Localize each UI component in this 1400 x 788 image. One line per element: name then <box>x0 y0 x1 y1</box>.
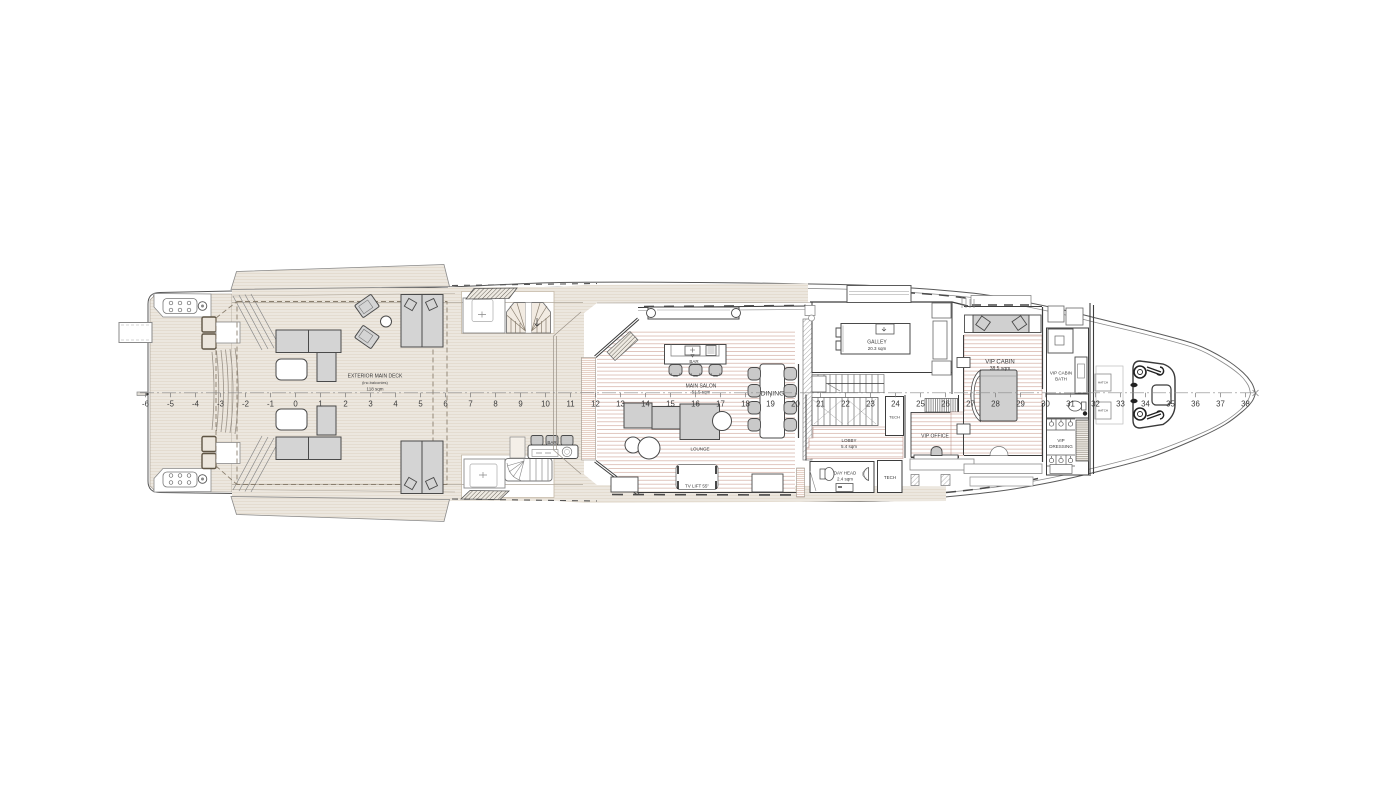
svg-text:LOUNGE: LOUNGE <box>690 447 709 452</box>
svg-text:GALLEY: GALLEY <box>867 340 887 346</box>
svg-text:16: 16 <box>691 400 700 409</box>
svg-text:-4: -4 <box>192 400 200 409</box>
svg-text:EXTERIOR MAIN DECK: EXTERIOR MAIN DECK <box>348 374 403 380</box>
svg-text:5: 5 <box>418 400 423 409</box>
svg-text:18: 18 <box>741 400 750 409</box>
svg-text:15: 15 <box>666 400 675 409</box>
svg-text:25: 25 <box>916 400 925 409</box>
svg-text:20.3 sqm: 20.3 sqm <box>868 346 887 351</box>
svg-text:-6: -6 <box>142 400 149 409</box>
svg-text:VIP CABIN: VIP CABIN <box>1050 371 1072 376</box>
svg-text:32: 32 <box>1091 400 1100 409</box>
svg-text:10: 10 <box>541 400 550 409</box>
svg-text:VIP OFFICE: VIP OFFICE <box>921 434 949 440</box>
svg-text:DRESSING: DRESSING <box>1049 444 1073 449</box>
svg-text:5.4 sqm: 5.4 sqm <box>841 444 857 449</box>
svg-text:TECH: TECH <box>889 415 900 420</box>
svg-text:29: 29 <box>1016 400 1025 409</box>
svg-text:8: 8 <box>493 400 497 409</box>
svg-text:2: 2 <box>343 400 347 409</box>
svg-text:35: 35 <box>1166 400 1175 409</box>
svg-text:-3: -3 <box>217 400 224 409</box>
svg-text:37: 37 <box>1216 400 1225 409</box>
svg-text:BAR: BAR <box>689 359 699 364</box>
svg-text:VIP: VIP <box>1057 438 1064 443</box>
svg-text:BATH: BATH <box>1055 377 1067 382</box>
svg-text:LOBBY: LOBBY <box>841 438 856 443</box>
svg-text:HATCH: HATCH <box>1098 381 1108 385</box>
svg-text:0: 0 <box>293 400 298 409</box>
svg-text:22: 22 <box>841 400 850 409</box>
svg-text:HATCH: HATCH <box>1098 409 1108 413</box>
svg-text:TV LIFT 55": TV LIFT 55" <box>685 484 709 489</box>
svg-text:VIP CABIN: VIP CABIN <box>985 360 1015 366</box>
svg-text:27: 27 <box>966 400 975 409</box>
svg-text:11: 11 <box>566 400 574 409</box>
svg-text:33: 33 <box>1116 400 1125 409</box>
svg-text:14: 14 <box>641 400 650 409</box>
svg-text:31: 31 <box>1066 400 1075 409</box>
svg-text:-2: -2 <box>242 400 249 409</box>
svg-text:20: 20 <box>791 400 800 409</box>
svg-text:1: 1 <box>318 400 322 409</box>
svg-text:21: 21 <box>816 400 825 409</box>
svg-text:(inc.balconies): (inc.balconies) <box>362 380 388 385</box>
svg-text:DAY HEAD: DAY HEAD <box>834 471 857 476</box>
svg-text:2.4 sqm: 2.4 sqm <box>837 477 853 482</box>
svg-text:26: 26 <box>941 400 950 409</box>
svg-text:38.5 sqm: 38.5 sqm <box>990 366 1011 372</box>
svg-text:17: 17 <box>716 400 725 409</box>
svg-text:TECH: TECH <box>884 475 896 480</box>
svg-text:23: 23 <box>866 400 875 409</box>
svg-text:-1: -1 <box>267 400 274 409</box>
svg-text:36: 36 <box>1191 400 1200 409</box>
svg-text:24: 24 <box>891 400 900 409</box>
svg-text:-5: -5 <box>167 400 175 409</box>
svg-text:BAR: BAR <box>547 440 557 445</box>
svg-text:7: 7 <box>468 400 472 409</box>
svg-text:19: 19 <box>766 400 775 409</box>
svg-text:DINING: DINING <box>761 391 785 398</box>
svg-text:118 sqm: 118 sqm <box>367 387 384 392</box>
svg-text:6: 6 <box>443 400 447 409</box>
svg-text:30: 30 <box>1041 400 1050 409</box>
svg-text:9: 9 <box>518 400 522 409</box>
svg-text:34: 34 <box>1141 400 1150 409</box>
svg-text:4: 4 <box>393 400 398 409</box>
svg-text:13: 13 <box>616 400 625 409</box>
svg-text:38: 38 <box>1241 400 1250 409</box>
svg-text:12: 12 <box>591 400 600 409</box>
svg-text:51.5 sqm: 51.5 sqm <box>692 390 711 395</box>
svg-text:28: 28 <box>991 400 1000 409</box>
svg-text:3: 3 <box>368 400 372 409</box>
